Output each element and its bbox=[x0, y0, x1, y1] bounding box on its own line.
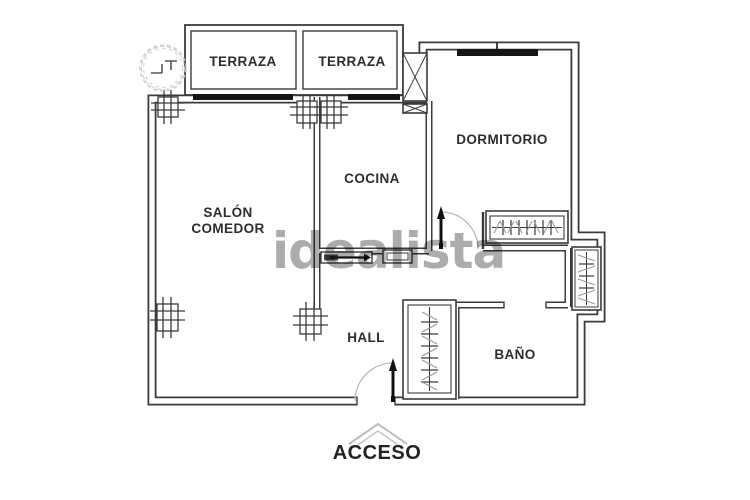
room-label-terraza-1: TERRAZA bbox=[185, 54, 301, 69]
bedroom-window bbox=[457, 49, 538, 56]
room-label-salon-comedor: SALÓN COMEDOR bbox=[160, 205, 296, 237]
room-label-dormitorio: DORMITORIO bbox=[432, 132, 572, 147]
room-label-cocina: COCINA bbox=[322, 171, 422, 186]
salon-label-line1: SALÓN bbox=[203, 205, 252, 220]
room-label-hall: HALL bbox=[331, 330, 401, 345]
room-label-terraza-2: TERRAZA bbox=[303, 54, 401, 69]
tree-icon bbox=[140, 45, 186, 91]
shaft-x-icon bbox=[403, 53, 427, 113]
wardrobe-hanger-icon bbox=[403, 300, 456, 399]
entrance-label: ACCESO bbox=[307, 442, 447, 465]
door-swing-icon bbox=[355, 358, 397, 402]
room-label-bano: BAÑO bbox=[480, 347, 550, 362]
salon-label-line2: COMEDOR bbox=[191, 221, 264, 236]
kitchen-terrace-window bbox=[348, 94, 400, 100]
idealista-watermark: idealista bbox=[272, 222, 505, 280]
salon-terrace-window bbox=[193, 94, 293, 100]
floorplan-canvas: idealista TERRAZA TERRAZA DORMITORIO COC… bbox=[0, 0, 750, 500]
wardrobe-hanger-icon bbox=[572, 247, 601, 310]
